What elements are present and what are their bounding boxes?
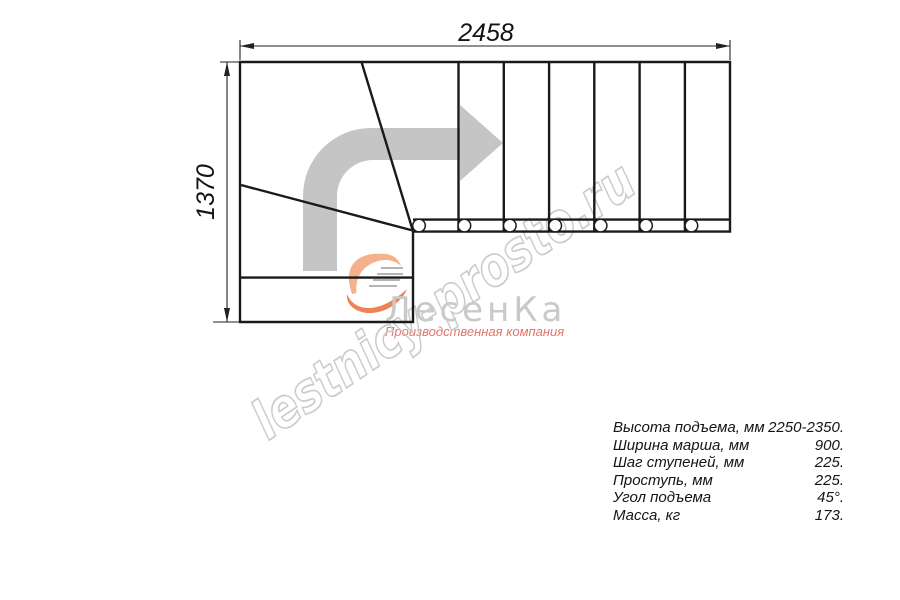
spec-label: Ширина марша, мм bbox=[613, 437, 749, 455]
spec-value: 900. bbox=[815, 437, 844, 455]
baluster-circles bbox=[413, 219, 698, 232]
width-dimension-label: 2458 bbox=[457, 19, 514, 47]
spec-label: Высота подъема, мм bbox=[613, 419, 765, 437]
spec-label: Шаг ступеней, мм bbox=[613, 454, 744, 472]
spec-value: 225. bbox=[815, 472, 844, 490]
spec-row-mass: Масса, кг 173. bbox=[613, 507, 844, 525]
width-arrow-left-icon bbox=[240, 43, 254, 49]
spec-label: Масса, кг bbox=[613, 507, 680, 525]
height-arrow-top-icon bbox=[224, 62, 230, 76]
width-arrow-right-icon bbox=[716, 43, 730, 49]
spec-row-step-pitch: Шаг ступеней, мм 225. bbox=[613, 454, 844, 472]
height-arrow-bottom-icon bbox=[224, 308, 230, 322]
spec-value: 2250-2350. bbox=[768, 419, 844, 437]
spec-value: 173. bbox=[815, 507, 844, 525]
height-dimension-label: 1370 bbox=[192, 164, 220, 220]
spec-row-height: Высота подъема, мм 2250-2350. bbox=[613, 419, 844, 437]
specs-panel: Высота подъема, мм 2250-2350. Ширина мар… bbox=[613, 419, 844, 524]
spec-row-angle: Угол подъема 45°. bbox=[613, 489, 844, 507]
spec-row-tread: Проступь, мм 225. bbox=[613, 472, 844, 490]
spec-row-flight-width: Ширина марша, мм 900. bbox=[613, 437, 844, 455]
stair-drawing-page: ЛесенКа Производственная компания lestni… bbox=[0, 0, 900, 600]
spec-label: Проступь, мм bbox=[613, 472, 713, 490]
site-watermark-text: lestnicy-prosto.ru bbox=[240, 149, 647, 452]
spec-label: Угол подъема bbox=[613, 489, 711, 507]
spec-value: 225. bbox=[815, 454, 844, 472]
spec-value: 45°. bbox=[817, 489, 844, 507]
